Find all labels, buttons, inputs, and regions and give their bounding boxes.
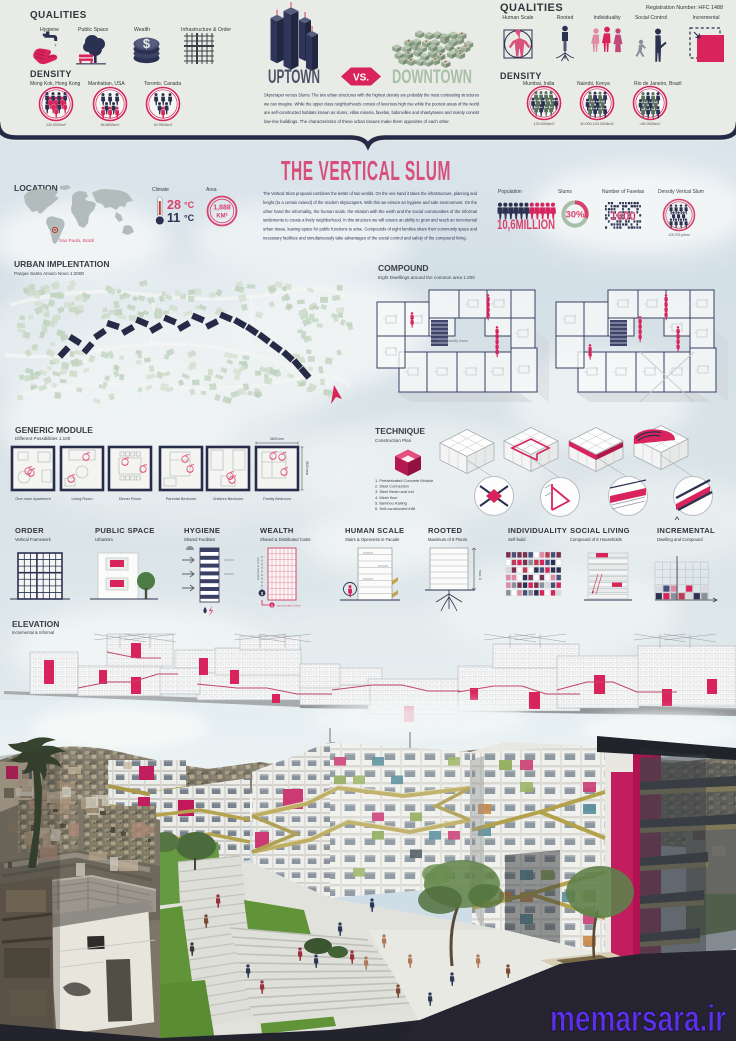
svg-text:Community Area: Community Area	[438, 338, 468, 343]
svg-text:Children Bedroom: Children Bedroom	[213, 497, 244, 501]
svg-text:ROOTED: ROOTED	[428, 526, 463, 535]
svg-text:11: 11	[167, 211, 180, 225]
svg-text:40.950/km2: 40.950/km2	[154, 123, 173, 127]
svg-text:Shared & Distributed Costs: Shared & Distributed Costs	[260, 537, 311, 542]
svg-text:Social Control: Social Control	[635, 15, 667, 21]
svg-text:Hygiene: Hygiene	[40, 27, 59, 33]
svg-text:Wealth: Wealth	[134, 27, 150, 33]
svg-text:60.000-100.000/km2: 60.000-100.000/km2	[581, 122, 614, 126]
svg-text:QUALITIES: QUALITIES	[30, 10, 87, 21]
svg-text:Eight Dwellings around the com: Eight Dwellings around the common area 1…	[378, 275, 475, 280]
svg-text:community is free: community is free	[277, 604, 301, 608]
svg-text:HYGIENE: HYGIENE	[184, 526, 220, 535]
svg-text:INDIVIDUALITY: INDIVIDUALITY	[508, 526, 567, 535]
svg-text:max. 8: max. 8	[478, 570, 482, 580]
svg-text:low-rise buildings. The charac: low-rise buildings. The characteristics …	[264, 119, 450, 124]
svg-text:Parental Bedroom: Parental Bedroom	[166, 497, 197, 501]
svg-text:66.880/km2: 66.880/km2	[101, 123, 120, 127]
svg-text:Family Bedroom: Family Bedroom	[263, 497, 291, 501]
svg-text:1600: 1600	[610, 211, 636, 223]
svg-text:Parque Santo Amaro Novo 1:2000: Parque Santo Amaro Novo 1:2000	[14, 271, 84, 276]
svg-text:Mumbai, India: Mumbai, India	[523, 81, 555, 87]
svg-text:Toronto, Canada: Toronto, Canada	[144, 81, 181, 87]
svg-text:125.375 p/km²: 125.375 p/km²	[668, 233, 691, 237]
svg-text:Mong Kok, Hong Kong: Mong Kok, Hong Kong	[30, 81, 81, 87]
svg-text:$: $	[143, 36, 151, 51]
svg-text:Urbanism: Urbanism	[95, 537, 113, 542]
svg-text:HUMAN SCALE: HUMAN SCALE	[345, 526, 404, 535]
svg-text:2. Steel Connection: 2. Steel Connection	[375, 484, 409, 489]
svg-text:THE VERTICAL SLUM: THE VERTICAL SLUM	[281, 155, 451, 186]
svg-text:Compound of 8 Households: Compound of 8 Households	[570, 537, 622, 542]
svg-text:Living Room: Living Room	[71, 497, 92, 501]
svg-text:Construction Plan: Construction Plan	[375, 438, 412, 443]
svg-text:ELEVATION: ELEVATION	[12, 619, 59, 629]
svg-text:Registration Number: HFC 1488: Registration Number: HFC 1488	[646, 5, 723, 11]
svg-text:1,888: 1,888	[213, 205, 231, 212]
svg-text:WEALTH: WEALTH	[260, 526, 294, 535]
svg-text:Individuality: Individuality	[593, 15, 621, 21]
svg-text:settlements to create a lively: settlements to create a lively neighborh…	[263, 218, 477, 223]
svg-text:SOCIAL LIVING: SOCIAL LIVING	[570, 526, 630, 535]
svg-text:height (to a certain extend) o: height (to a certain extend) of the mode…	[263, 200, 478, 205]
svg-text:6. Self-constructed infill: 6. Self-constructed infill	[375, 506, 415, 511]
svg-text:130.000/km²: 130.000/km²	[46, 123, 67, 127]
svg-text:30%: 30%	[565, 210, 585, 221]
svg-text:Population: Population	[498, 189, 522, 195]
svg-text:°C: °C	[184, 200, 195, 210]
svg-text:ORDER: ORDER	[15, 526, 44, 535]
svg-text:Vertical Framework: Vertical Framework	[15, 537, 52, 542]
svg-text:5. Bamboo Railing: 5. Bamboo Railing	[375, 500, 407, 505]
svg-text:Rooted: Rooted	[557, 15, 574, 21]
svg-text:Density Verical Slum: Density Verical Slum	[658, 189, 704, 195]
svg-text:we can imagine. While the uppe: we can imagine. While the upper class ne…	[264, 101, 480, 106]
svg-text:Dwelling and Compound: Dwelling and Compound	[657, 537, 703, 542]
svg-text:other hand the informality, th: other hand the informality, the human sc…	[263, 209, 477, 214]
svg-text:133.000/km2: 133.000/km2	[534, 122, 555, 126]
svg-text:$: $	[271, 604, 273, 608]
svg-text:Self-build: Self-build	[508, 537, 526, 542]
svg-text:URBAN IMPLENTATION: URBAN IMPLENTATION	[14, 259, 110, 269]
svg-text:Stairs & Openness in Facade: Stairs & Openness in Facade	[345, 537, 400, 542]
svg-text:Sao Paulo, Brazil: Sao Paulo, Brazil	[59, 238, 94, 243]
svg-text:Climate: Climate	[152, 187, 169, 193]
svg-text:INCREMENTAL: INCREMENTAL	[657, 526, 715, 535]
svg-text:TECHNIQUE: TECHNIQUE	[375, 426, 425, 436]
svg-text:QUALITIES: QUALITIES	[500, 2, 563, 14]
svg-text:>80.000/km2: >80.000/km2	[640, 122, 661, 126]
svg-text:One room Apartment: One room Apartment	[15, 497, 51, 501]
svg-text:KM²: KM²	[216, 213, 227, 220]
svg-text:DENSITY: DENSITY	[500, 71, 542, 81]
svg-text:Dinner Room: Dinner Room	[119, 497, 141, 501]
svg-text:28: 28	[167, 198, 181, 212]
svg-text:Maximum of 8 Floors: Maximum of 8 Floors	[428, 537, 467, 542]
svg-text:Human Scale: Human Scale	[502, 15, 533, 21]
svg-text:GENERIC MODULE: GENERIC MODULE	[15, 425, 93, 435]
svg-text:DOWNTOWN: DOWNTOWN	[392, 67, 472, 88]
svg-text:Rio de Janeiro, Brazil: Rio de Janeiro, Brazil	[634, 81, 682, 87]
svg-text:1. Prefabricated Concrete Modu: 1. Prefabricated Concrete Module	[375, 478, 433, 483]
svg-text:Public Space: Public Space	[78, 27, 108, 33]
svg-text:Shared Facilities: Shared Facilities	[184, 537, 215, 542]
svg-text:3600 mm: 3600 mm	[305, 461, 309, 475]
svg-text:Manhattan, USA: Manhattan, USA	[88, 81, 125, 87]
svg-text:3600 mm: 3600 mm	[270, 437, 284, 441]
svg-text:The Vertical Slum proposal com: The Vertical Slum proposal combines the …	[263, 191, 478, 196]
svg-text:Incremental: Incremental	[692, 15, 719, 21]
svg-text:Skyscraper versus Slums: The t: Skyscraper versus Slums: The two urban s…	[264, 93, 480, 98]
svg-text:4. Mesh floor: 4. Mesh floor	[375, 495, 398, 500]
svg-text:Incremental & Informal: Incremental & Informal	[12, 630, 54, 635]
svg-text:COMPOUND: COMPOUND	[378, 263, 429, 273]
svg-text:memarsara.ir: memarsara.ir	[550, 998, 726, 1039]
svg-text:necessary facilities and simul: necessary facilities and simultaneously …	[263, 236, 467, 241]
svg-text:VS.: VS.	[353, 73, 369, 84]
svg-text:Slums: Slums	[558, 189, 572, 195]
svg-text:Different Possibilities 1:100: Different Possibilities 1:100	[15, 436, 71, 441]
svg-text:10,6MILLION: 10,6MILLION	[497, 216, 555, 232]
svg-text:°C: °C	[184, 213, 195, 223]
svg-text:urban tissue, leaving space fo: urban tissue, leaving space for public f…	[263, 227, 478, 232]
svg-text:Infrastructure & Order: Infrastructure & Order	[181, 27, 231, 33]
svg-text:are self-constructed habitats: are self-constructed habitats known as s…	[264, 110, 480, 115]
svg-text:DENSITY: DENSITY	[30, 69, 72, 79]
svg-text:3. Steel Beam and rod: 3. Steel Beam and rod	[375, 489, 414, 494]
svg-text:PUBLIC SPACE: PUBLIC SPACE	[95, 526, 155, 535]
svg-text:Area: Area	[206, 187, 217, 193]
svg-text:expenses to share: expenses to share	[256, 557, 260, 580]
svg-text:Number of Favelas: Number of Favelas	[602, 189, 645, 195]
svg-text:UPTOWN: UPTOWN	[268, 67, 320, 88]
